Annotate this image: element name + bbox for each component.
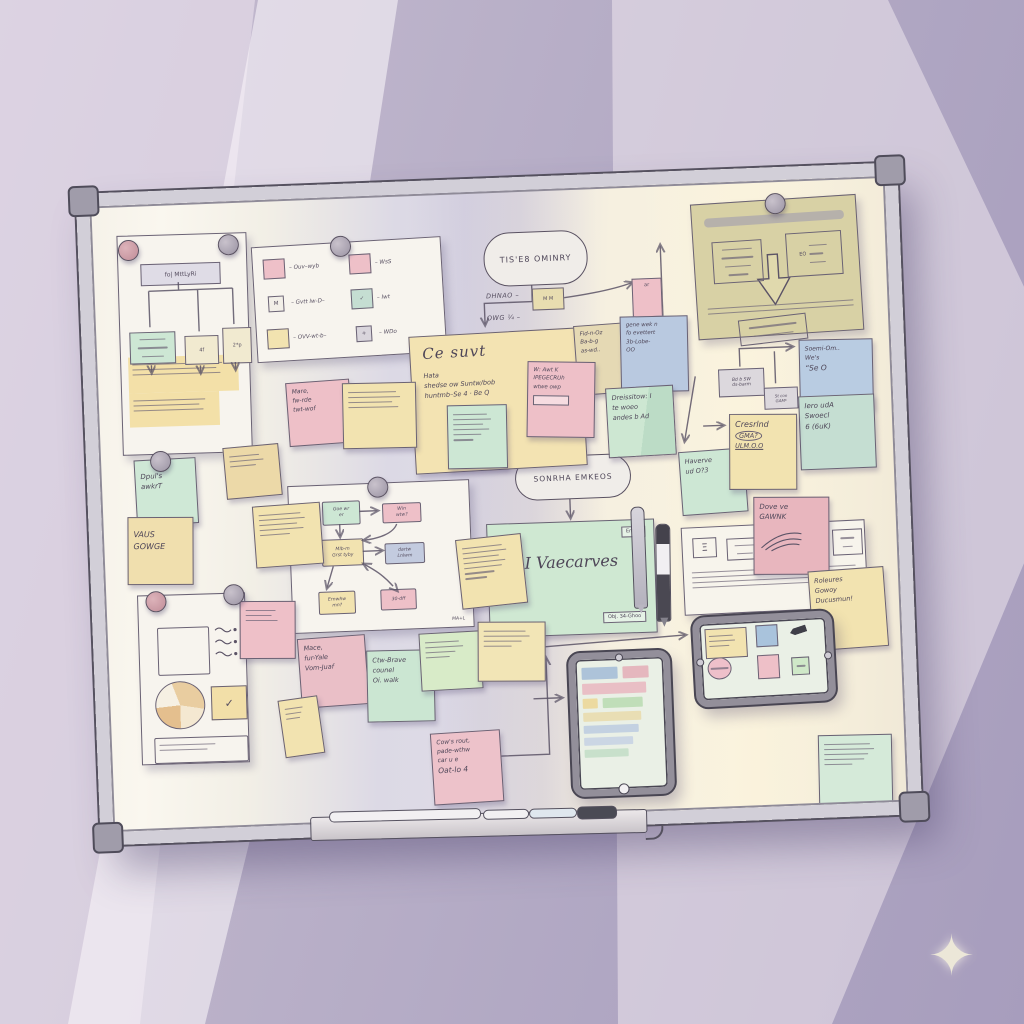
legend-label: – Iwt <box>377 294 390 301</box>
tablet-home-button <box>618 783 629 794</box>
scribble-line <box>824 763 852 765</box>
poster: EO <box>690 194 864 340</box>
note-line: gene wek n <box>626 321 682 330</box>
scribble-line <box>453 439 473 441</box>
scribble-line <box>246 620 278 622</box>
scribble-line <box>465 576 487 580</box>
scribble-line <box>484 645 512 647</box>
legend-swatch-gray-plus: + <box>356 325 373 342</box>
whiteboard-marker <box>329 808 481 823</box>
scribble-line <box>465 570 495 575</box>
sheet-footer-bar <box>154 735 249 764</box>
note-line: wtwe owp <box>533 384 589 392</box>
note-line: “Se O <box>805 362 867 373</box>
sketch-rectangle <box>157 626 210 676</box>
whiteboard: fo| MttLyRi 4f 2*p – Ouv–wyb – WsS M– Gv… <box>76 162 922 845</box>
scribble-line <box>285 711 301 715</box>
scribble-line <box>843 545 853 547</box>
note-chip <box>533 395 569 406</box>
flowchart-node-right: 2*p <box>222 327 252 364</box>
scribble-line <box>348 401 392 404</box>
scribble-line <box>425 640 459 643</box>
note-title: Ce suvt <box>422 342 487 364</box>
scribble-line <box>453 418 491 420</box>
note-yellow-overlay <box>252 502 324 569</box>
tablet-side-button <box>824 651 832 659</box>
scribble-line <box>230 458 264 463</box>
scribble-line <box>258 512 300 517</box>
note-ipeg: W: Awt K IPEGECRUh wtwe owp <box>527 361 596 438</box>
note-line: GAWNK <box>759 513 823 523</box>
flow-node-line: 30-dff <box>392 596 406 602</box>
scribble-line <box>453 434 481 436</box>
note-mint-scribbles <box>447 404 508 469</box>
tablet-landscape <box>692 610 837 708</box>
legend-swatch-teal-check: ✓ <box>350 288 373 309</box>
scribble-line <box>453 413 487 415</box>
scribble-line <box>824 748 874 751</box>
squiggle-list <box>213 623 242 662</box>
note-iero: Iero udA Swoecl 6 (6uK) <box>798 394 877 471</box>
flow-node-line: er <box>339 513 344 519</box>
flow-node-line: wtw? <box>396 513 408 519</box>
scribble-line <box>425 650 455 653</box>
legend-label: – OVV-wt-b– <box>293 333 327 341</box>
scribble-line <box>462 548 506 554</box>
tray-hook <box>645 825 663 840</box>
flow-node-pink: Win wtw? <box>382 502 422 523</box>
menu-glyph-box: Ξ <box>692 537 717 558</box>
screen-block-blue <box>581 667 618 680</box>
poster-eo-label: EO <box>799 251 806 257</box>
legend-label: – WsS <box>375 259 392 266</box>
tablet-camera-dot <box>615 653 623 661</box>
scribble-line <box>709 639 735 642</box>
note-line: 6 (6uK) <box>805 421 869 433</box>
note-line: IPEGECRUh <box>533 376 589 384</box>
note-line: Soemi-Om.. <box>805 344 867 353</box>
legend-label: – WDo <box>379 328 397 335</box>
scribble-line <box>810 261 826 264</box>
legend-label: – Gvtt lw-D– <box>291 298 325 306</box>
screen-block-pink <box>582 681 646 694</box>
cloud-bubble-top: TIS'E8 OMINRY <box>483 229 589 287</box>
tablet-portrait <box>568 650 675 798</box>
frame-corner-cap <box>67 185 99 217</box>
screen-block-pink <box>623 665 649 678</box>
scribble-line <box>159 743 215 746</box>
scribble-line <box>453 428 489 430</box>
leaf-doodle-icon <box>759 528 803 552</box>
scribble-line <box>749 322 797 329</box>
whiteboard-marker-dark <box>577 806 617 820</box>
flow-node-yellow2: Ernwhw mn? <box>318 591 356 615</box>
legend-item: ✓– Iwt <box>350 280 434 313</box>
scribble-line <box>285 706 303 710</box>
scribble-line <box>824 758 864 760</box>
scribble-line <box>246 615 272 617</box>
note-mint-bottom-right <box>818 734 894 812</box>
highlight-block <box>129 391 220 428</box>
note-line: We's <box>805 353 867 362</box>
flow-node-line: Lnlwm <box>397 553 412 559</box>
note-line: W: Awt K <box>533 367 589 375</box>
flow-card-corner-note: MA+L <box>452 616 465 622</box>
whiteboard-marker <box>529 808 577 819</box>
frame-corner-cap <box>898 791 930 823</box>
scribble-line <box>348 396 400 399</box>
scribble-line <box>463 554 499 559</box>
tablet-screen-content <box>581 665 660 758</box>
scribble-line <box>824 753 868 756</box>
screen-block-green <box>585 748 629 758</box>
screen-block-tan <box>583 711 641 722</box>
tablet-blue-square <box>755 624 778 647</box>
legend-item: M– Gvtt lw-D– <box>264 285 348 318</box>
gray-box-st: St con GAM* <box>764 386 799 409</box>
flow-node-teal: Goe wr er <box>322 500 361 525</box>
note-cres: Cresrlnd GMA? ULM.O.O <box>729 414 797 490</box>
scribble-line <box>728 273 748 276</box>
flow-node-pink2: 30-dff <box>380 588 417 610</box>
marker-doodle-icon <box>789 625 807 637</box>
note-yellow-partial <box>277 695 325 758</box>
tablet-side-button <box>696 658 704 666</box>
scribble-line <box>348 406 398 409</box>
branch-label-top: DHNAO – <box>486 291 519 300</box>
gray-box-bd: Bd b SW ds-barm <box>718 368 765 398</box>
frame-corner-cap <box>874 154 906 186</box>
doc-mini-box <box>832 528 863 555</box>
scribble-line <box>132 372 220 376</box>
note-circled-word: GMA? <box>735 431 762 441</box>
flowchart-header-box: fo| MttLyRi <box>140 262 221 286</box>
note-line: 3b-Lobe- <box>626 338 682 347</box>
scribble-line <box>229 453 259 457</box>
scribble-line <box>709 645 729 648</box>
scribble-line <box>484 635 530 637</box>
legend-item: – WsS <box>348 246 432 279</box>
note-line: GOWGE <box>134 542 188 553</box>
poster-eo-lines <box>809 240 831 267</box>
marker-tray <box>310 809 647 841</box>
frame-corner-cap <box>92 822 124 854</box>
poster-text-box <box>711 239 764 284</box>
note-wek: gene wek n fo evettert 3b-Lobe- OO <box>620 315 690 392</box>
scribble-line <box>453 423 483 425</box>
note-cows: Cow's rout, pade-wthw car u e Oat-lo 4 <box>430 729 505 805</box>
tablet-green-square <box>791 656 810 675</box>
scribble-line <box>133 398 205 402</box>
flowchart-node-mid: 4f <box>184 335 219 365</box>
branch-label-bottom: OWG ¼ – <box>487 313 521 322</box>
scribble-line <box>462 544 502 550</box>
note-pink-scribbles <box>240 601 296 659</box>
scribble-line <box>709 634 733 637</box>
note-line: Dove ve <box>759 503 823 513</box>
sparkle-icon: ✦ <box>928 924 975 989</box>
note-vaus: VAUS GOWGE <box>127 517 193 585</box>
scribble-line <box>142 355 164 357</box>
pen-dark <box>655 524 671 622</box>
tablet-pink-square <box>757 654 780 679</box>
pink-branch-box: ar <box>631 278 662 318</box>
screen-block-blue <box>584 724 639 734</box>
scribble-line <box>708 304 854 315</box>
box-line: ds-barm <box>732 382 751 388</box>
scribble-line <box>425 645 463 649</box>
scribble-line <box>484 630 526 632</box>
scribble-line <box>348 391 396 394</box>
branch-box: M M <box>532 287 565 310</box>
chart-sheet: ✓ <box>137 592 250 765</box>
whiteboard-marker <box>483 809 529 820</box>
pie-chart-doodle <box>155 681 206 730</box>
scribble-line <box>737 552 753 554</box>
scribble-line <box>230 464 256 468</box>
scribble-line <box>809 252 823 254</box>
screen-block-yellow <box>583 698 599 709</box>
note-dreis: Dreissitow: I te woeo andes b Ad <box>605 385 677 459</box>
poster-eo-box: EO <box>785 230 844 278</box>
scribble-line <box>132 367 216 371</box>
note-yellow-curled <box>478 622 546 682</box>
scribble-line <box>259 522 297 526</box>
scribble-line <box>464 564 502 570</box>
scribble-line <box>260 527 304 532</box>
note-line: fo evettert <box>626 330 682 339</box>
box-line: GAM* <box>775 398 786 403</box>
legend-swatch-yellow <box>267 328 290 349</box>
note-line: Cresrlnd <box>735 420 791 431</box>
note-yellow-scribbles <box>455 533 528 610</box>
tablet-mini-note <box>704 627 748 659</box>
flow-node-line: Grst tyby <box>332 552 353 559</box>
note-line: andes b Ad <box>612 410 668 422</box>
legend-swatch-pink <box>348 254 371 275</box>
scribble-line <box>259 516 305 521</box>
note-tan-scribbles <box>222 443 282 500</box>
scribble-line <box>725 264 751 267</box>
flowchart-paper: fo| MttLyRi 4f 2*p <box>116 232 252 456</box>
scribble-line <box>824 743 870 746</box>
legend-item: – OVV-wt-b– <box>266 320 350 353</box>
scribble-line <box>133 403 199 407</box>
scribble-line <box>260 533 290 537</box>
scribble-line <box>138 347 168 349</box>
scribble-line <box>735 544 755 546</box>
note-line: VAUS <box>133 530 187 541</box>
scribble-line <box>840 537 854 539</box>
screen-block-green <box>603 697 643 709</box>
checked-square-doodle: ✓ <box>211 685 248 720</box>
legend-swatch-outline: M <box>268 295 285 312</box>
scribble-line <box>286 717 300 721</box>
scribble-line <box>809 244 827 247</box>
flow-node-line: mn? <box>332 603 342 609</box>
flowchart-node-teal <box>129 331 176 364</box>
scribble-line <box>139 338 165 340</box>
note-line: awkrT <box>141 481 191 493</box>
note-line: OO <box>626 347 682 356</box>
scribble-line <box>134 408 204 412</box>
tablet-pink-circle <box>707 657 732 680</box>
note-green-scribbles <box>418 630 483 691</box>
note-dove: Dove ve GAWNK <box>753 497 829 575</box>
note-yellow-scribbles <box>342 382 417 450</box>
scribble-line <box>426 656 450 659</box>
scribble-line <box>796 665 805 667</box>
scribble-line <box>721 256 753 260</box>
legend-item: – Ouv–wyb <box>262 251 346 284</box>
scribble-line <box>484 640 522 642</box>
note-line: ULM.O.O <box>735 441 791 450</box>
scribble-line <box>754 331 794 337</box>
legend-swatch-pink <box>263 259 286 280</box>
scribble-line <box>722 247 752 250</box>
scribble-line <box>246 609 276 611</box>
flow-node-yellow: Mlb-m Grst tyby <box>321 538 364 567</box>
flow-node-blue: dartw Lnlwm <box>384 542 425 565</box>
scribble-line <box>160 748 208 751</box>
screen-block-blue <box>584 736 633 746</box>
legend-label: – Ouv–wyb <box>289 264 319 272</box>
